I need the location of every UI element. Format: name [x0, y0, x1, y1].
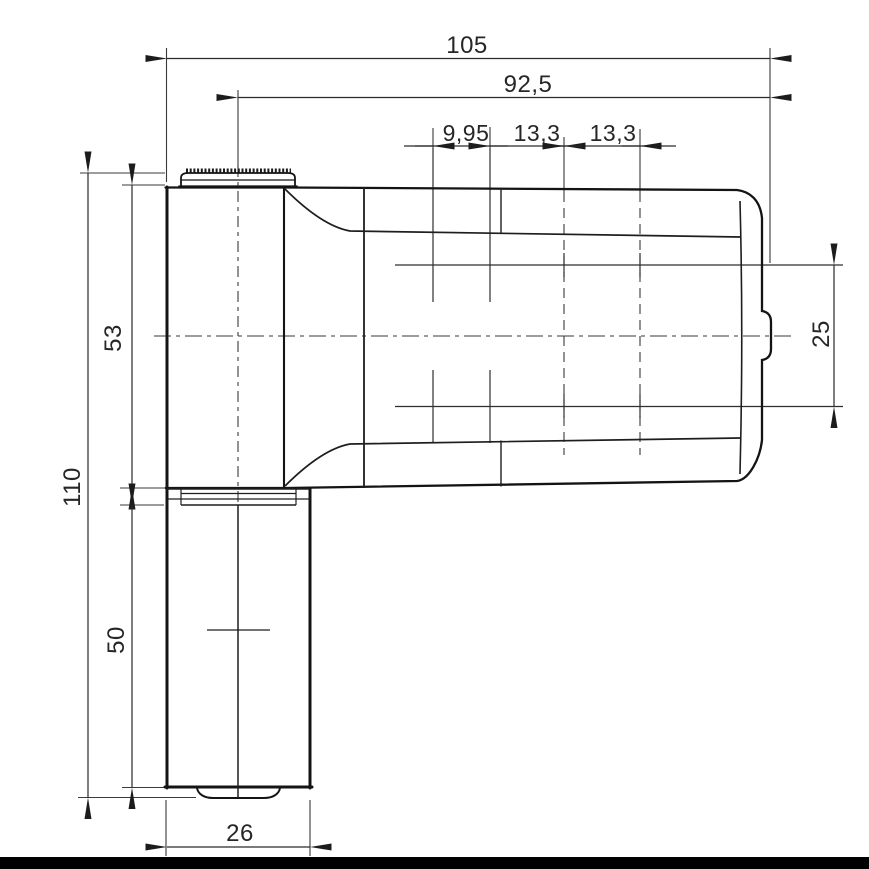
dim-92-5-label: 92,5: [504, 71, 553, 98]
dim-13-3a-label: 13,3: [514, 120, 561, 146]
hinge-details: [167, 188, 742, 798]
dim-9-95-label: 9,95: [443, 120, 490, 146]
leaf-inner-top: [285, 189, 740, 237]
dim-50-label: 50: [103, 626, 130, 654]
dimension-lines: [88, 59, 834, 848]
dim-110-label: 110: [59, 467, 86, 507]
dim-13-3b-label: 13,3: [590, 120, 637, 146]
leaf-right-fold: [740, 201, 742, 474]
screw-holes: [395, 148, 843, 443]
footer-bar: [0, 857, 869, 869]
centerlines: [154, 166, 793, 506]
dim-105-label: 105: [446, 32, 488, 59]
dim-25-label: 25: [808, 320, 835, 348]
dim-53-label: 53: [100, 324, 127, 352]
leaf-inner-bottom: [285, 438, 740, 486]
extension-lines: [78, 48, 770, 856]
hinge-drawing-svg: 105 92,5 9,95 13,3 13,3 110 53 50 25 26: [0, 0, 869, 869]
dimension-labels: 105 92,5 9,95 13,3 13,3 110 53 50 25 26: [59, 32, 835, 847]
technical-drawing-page: 105 92,5 9,95 13,3 13,3 110 53 50 25 26: [0, 0, 869, 869]
dim-26-label: 26: [226, 820, 254, 847]
